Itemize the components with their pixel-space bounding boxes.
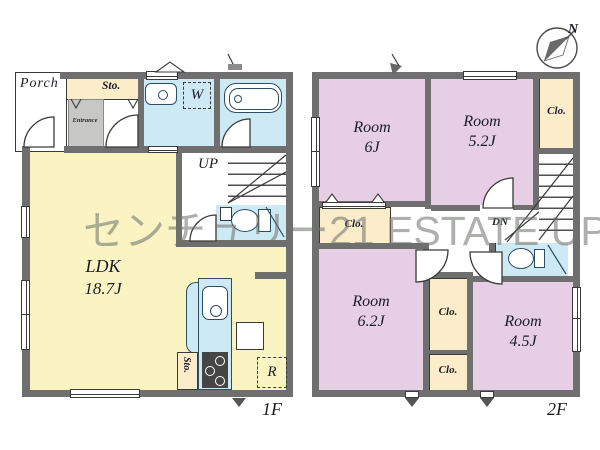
vent-stem [392, 54, 399, 66]
floor2-label: 2F [547, 399, 567, 420]
wall [138, 79, 144, 149]
wall [429, 350, 467, 354]
wall [22, 390, 293, 397]
stove-burner [215, 376, 225, 386]
room-6-2j-label: Room 6.2J [336, 292, 406, 332]
room-6-2j-size: 6.2J [336, 312, 406, 332]
room-6j-name: Room [337, 118, 407, 138]
stove-burner [215, 356, 225, 366]
porch-label: Porch [20, 76, 59, 92]
wall [214, 79, 220, 149]
closet-top-right-label: Clo. [540, 105, 573, 117]
window [21, 280, 30, 316]
room-5-2j-name: Room [447, 112, 517, 132]
ldk-label: LDK 18.7J [58, 255, 148, 299]
stove-icon [202, 352, 228, 388]
wall [425, 79, 431, 209]
window [21, 314, 30, 350]
vent-triangle [405, 398, 419, 407]
bathtub-drain [234, 95, 242, 103]
wall [255, 272, 293, 279]
kitchen-sink-drain [210, 305, 222, 317]
faucet-icon [228, 64, 242, 70]
floorplan-canvas: W R Porch Sto. Entrance [0, 0, 600, 450]
closet-mid-lower-label: Clo. [429, 364, 467, 376]
washbasin-drain [158, 90, 168, 100]
vent-triangle [480, 398, 494, 407]
ldk-name: LDK [58, 255, 148, 278]
washing-machine-box: W [183, 82, 211, 109]
closet-mid-upper-label: Clo. [429, 306, 467, 318]
window [572, 287, 581, 320]
floor1-label: 1F [262, 399, 282, 420]
kitchen-sink-icon [202, 286, 228, 320]
bathtub-icon [224, 83, 282, 113]
room-4-5j-name: Room [488, 312, 558, 332]
compass-needle-icon [544, 36, 569, 61]
stairs-up-label: UP [198, 156, 218, 173]
window [405, 391, 419, 398]
room-6-2j-name: Room [336, 292, 406, 312]
window [463, 71, 517, 80]
window [572, 318, 581, 352]
wall [312, 72, 580, 79]
room-4-5j-size: 4.5J [488, 332, 558, 352]
storage-top-label: Sto. [102, 80, 120, 92]
room-6j-size: 6J [337, 138, 407, 158]
room-4-5j-label: Room 4.5J [488, 312, 558, 352]
entrance-area [68, 99, 104, 149]
washing-machine-label: W [191, 87, 204, 104]
window [311, 117, 320, 153]
room-5-2j-size: 5.2J [447, 132, 517, 152]
storage-kitchen-label: Sto. [181, 357, 192, 373]
room-6j-label: Room 6J [337, 118, 407, 158]
ldk-size: 18.7J [58, 278, 148, 299]
wall [467, 276, 573, 282]
stove-burner [205, 366, 215, 376]
vent-triangle [232, 398, 246, 407]
room-5-2j-label: Room 5.2J [447, 112, 517, 152]
refrigerator-box: R [257, 357, 287, 388]
entrance-label: Entrance [68, 117, 102, 124]
window [21, 206, 30, 238]
washbasin-icon [145, 83, 177, 105]
compass-north-label: N [568, 22, 578, 38]
wall [312, 390, 580, 397]
window [146, 71, 178, 80]
sliding-door [148, 146, 178, 153]
faucet-icon [228, 54, 234, 66]
refrigerator-label: R [267, 364, 276, 381]
stairs-1f [228, 153, 286, 203]
wall [467, 282, 473, 390]
wall [22, 146, 30, 397]
compass-needle-icon [544, 36, 569, 61]
window [311, 151, 320, 187]
wall [64, 146, 293, 153]
watermark-text: センチュリー21 ESTATE UP [83, 197, 600, 257]
window [480, 391, 494, 398]
counter-table [236, 322, 264, 350]
window [70, 389, 140, 398]
